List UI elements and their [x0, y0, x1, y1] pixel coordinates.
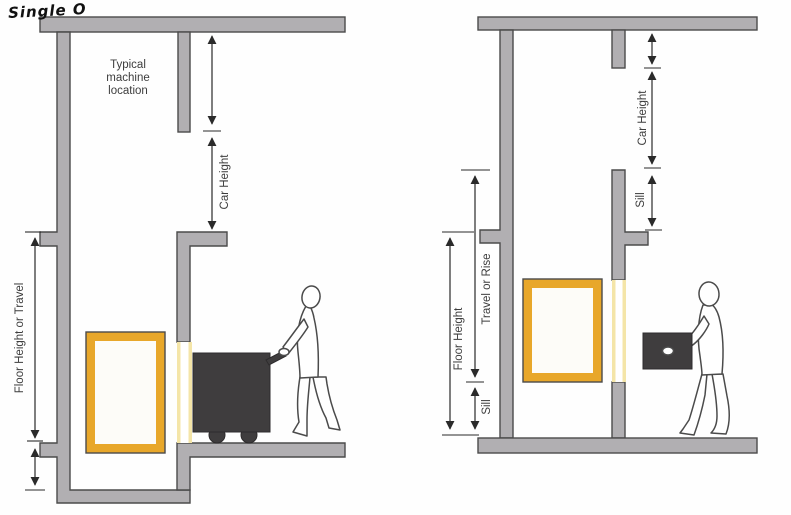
- travel-label: Travel or Rise: [481, 253, 493, 324]
- upper-door-header: [612, 30, 625, 68]
- rear-leg: [313, 377, 340, 430]
- sill-lower-label: Sill: [481, 399, 493, 414]
- gate-strip: [177, 342, 181, 443]
- rear-leg: [711, 374, 729, 434]
- svg-text:location: location: [108, 85, 148, 97]
- hand-cart: [193, 351, 286, 443]
- front-leg: [293, 377, 310, 436]
- ceiling-slab: [40, 17, 345, 32]
- car-gate: [177, 342, 192, 443]
- ceiling-slab: [478, 17, 757, 30]
- counter-loading-dumbwaiter-diagram: Car Height Sill Travel or Rise Sill Floo…: [442, 17, 757, 453]
- front-leg: [680, 374, 707, 435]
- head: [698, 281, 720, 306]
- lower-door-sill-wall: [612, 382, 625, 438]
- lower-floor-slab: [177, 443, 345, 490]
- floor-slab: [478, 438, 757, 453]
- person-carrying-box: [643, 281, 729, 435]
- svg-text:machine: machine: [106, 72, 149, 84]
- gate-strip: [612, 280, 616, 382]
- torso: [297, 306, 318, 378]
- floor-height-label: Floor Height: [453, 307, 465, 370]
- car-height-label: Car Height: [219, 154, 231, 210]
- dumbwaiter-car: [523, 279, 602, 382]
- gate-strip: [189, 342, 193, 443]
- left-wall: [480, 30, 513, 438]
- machine-room-partition: [178, 32, 190, 132]
- dumbwaiter-elevation-diagram-page: Single O: [0, 0, 791, 515]
- car-gate: [612, 280, 626, 382]
- svg-text:Typical: Typical: [110, 59, 146, 71]
- head: [300, 285, 322, 310]
- floor-height-label: Floor Height or Travel: [14, 283, 26, 394]
- upper-floor-slab-and-door-header: [177, 232, 227, 342]
- machine-location-note: Typical machine location: [106, 59, 149, 97]
- hand: [663, 347, 674, 355]
- floor-loading-dumbwaiter-diagram: Typical machine location Car Height Floo…: [14, 17, 345, 503]
- dumbwaiter-car: [86, 332, 165, 453]
- cart-body: [193, 353, 270, 432]
- mid-wall-and-counter: [612, 170, 648, 280]
- hand: [279, 349, 289, 356]
- car-height-label: Car Height: [637, 90, 649, 146]
- diagram-canvas: Typical machine location Car Height Floo…: [0, 0, 791, 515]
- car-interior: [95, 341, 156, 444]
- torso: [698, 305, 723, 375]
- person-pushing-cart: [279, 285, 340, 436]
- gate-strip: [623, 280, 627, 382]
- car-interior: [532, 288, 593, 373]
- sill-upper-label: Sill: [635, 192, 647, 207]
